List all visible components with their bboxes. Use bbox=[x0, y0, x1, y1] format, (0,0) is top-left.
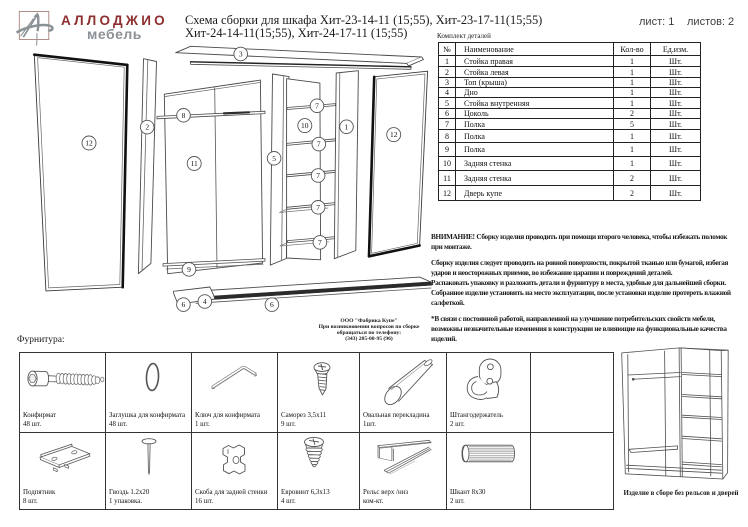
svg-text:7: 7 bbox=[316, 171, 320, 180]
svg-text:7: 7 bbox=[317, 140, 321, 149]
svg-text:11: 11 bbox=[191, 159, 198, 168]
svg-text:8: 8 bbox=[182, 111, 186, 120]
svg-text:2: 2 bbox=[145, 123, 149, 132]
svg-text:7: 7 bbox=[315, 101, 319, 110]
svg-text:9: 9 bbox=[187, 265, 191, 274]
svg-text:12: 12 bbox=[85, 139, 93, 148]
svg-text:4: 4 bbox=[203, 297, 207, 306]
svg-text:12: 12 bbox=[390, 130, 398, 139]
svg-text:7: 7 bbox=[318, 238, 322, 247]
svg-text:6: 6 bbox=[270, 300, 274, 309]
svg-text:1: 1 bbox=[345, 122, 349, 131]
svg-text:7: 7 bbox=[316, 203, 320, 212]
svg-text:5: 5 bbox=[272, 154, 276, 163]
svg-text:10: 10 bbox=[301, 121, 309, 130]
svg-text:3: 3 bbox=[239, 50, 243, 59]
svg-text:6: 6 bbox=[182, 300, 186, 309]
